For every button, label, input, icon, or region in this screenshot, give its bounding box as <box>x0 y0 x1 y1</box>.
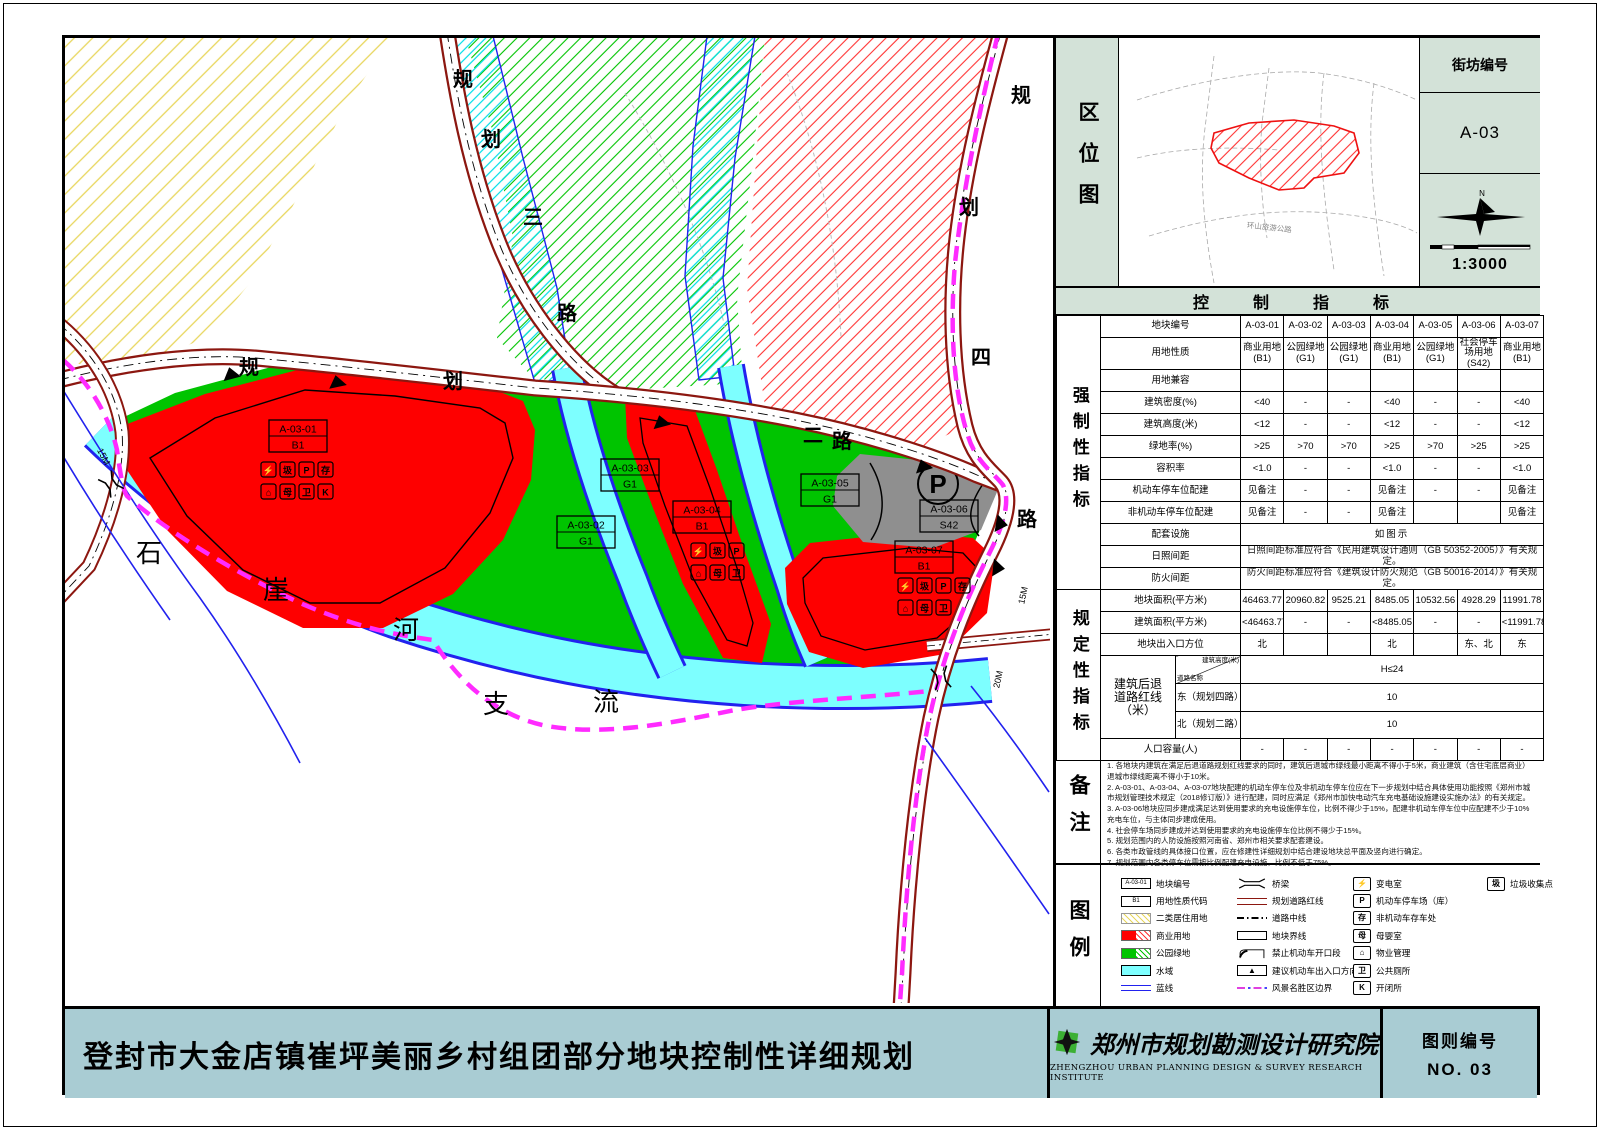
legend-item-label: 开闭所 <box>1376 982 1402 994</box>
legend-item-label: 建议机动车出入口方向 <box>1272 965 1358 977</box>
table-cell: 如图示 <box>1241 524 1544 546</box>
svg-text:B1: B1 <box>696 521 709 533</box>
table-cell: - <box>1284 502 1327 524</box>
table-cell: - <box>1457 612 1500 634</box>
legend-item-label: 桥梁 <box>1272 878 1289 890</box>
institute-name-en: ZHENGZHOU URBAN PLANNING DESIGN & SURVEY… <box>1050 1063 1380 1083</box>
svg-text:支: 支 <box>483 689 509 719</box>
legend-item: 禁止机动车开口段 <box>1237 945 1358 962</box>
svg-text:A-03-05: A-03-05 <box>811 478 849 490</box>
sheet-number-cell: 图则编号 NO. 03 <box>1383 1009 1537 1098</box>
scenic-boundary-swatch <box>1237 987 1267 990</box>
parking-symbol-letter: P <box>929 469 946 499</box>
svg-text:A-03-01: A-03-01 <box>279 424 317 436</box>
park-green-swatch <box>1121 948 1151 959</box>
table-cell: 北 <box>1370 634 1413 656</box>
table-cell: 商业用地 (B1) <box>1500 338 1543 370</box>
minimap-svg: 环山旅游公路 <box>1119 38 1419 285</box>
legend-item: ⌂物业管理 <box>1353 945 1453 962</box>
table-row: 用地兼容 <box>1057 370 1544 392</box>
svg-text:G1: G1 <box>623 479 637 491</box>
legend-item: K开闭所 <box>1353 979 1453 996</box>
legend-item-label: 用地性质代码 <box>1156 895 1208 907</box>
table-row: 规定性指标地块面积(平方米)46463.7720960.829525.21848… <box>1057 590 1544 612</box>
code-box-swatch: A-03-01 <box>1121 878 1151 889</box>
table-cell: 地块编号 <box>1101 316 1241 338</box>
plot-code-cell: A-03-01 <box>1241 316 1284 338</box>
table-cell <box>1414 634 1457 656</box>
svg-text:圾: 圾 <box>920 581 930 592</box>
table-cell: 8485.05 <box>1370 590 1413 612</box>
table-cell: >25 <box>1370 436 1413 458</box>
table-cell: 10 <box>1241 712 1544 739</box>
legend-item: P机动车停车场（库） <box>1353 892 1453 909</box>
svg-text:路: 路 <box>1017 507 1038 531</box>
svg-text:B1: B1 <box>918 561 931 573</box>
plan-sheet-page: P <box>0 0 1600 1130</box>
table-cell: - <box>1327 502 1370 524</box>
table-cell: 公园绿地 (G1) <box>1284 338 1327 370</box>
main-plan-map: P <box>65 38 1053 1006</box>
legend-item-label: 二类居住用地 <box>1156 912 1208 924</box>
scale-bar <box>1425 242 1535 252</box>
legend-item: 公园绿地 <box>1121 945 1208 962</box>
table-cell: 4928.29 <box>1457 590 1500 612</box>
svg-text:⌂: ⌂ <box>696 569 701 579</box>
svg-text:河: 河 <box>393 615 419 645</box>
table-cell <box>1457 502 1500 524</box>
table-cell: >25 <box>1500 436 1543 458</box>
facility-icon: ⚡ <box>1353 877 1371 891</box>
block-number-value: A-03 <box>1420 93 1540 174</box>
table-cell: 11991.78 <box>1500 590 1543 612</box>
table-cell <box>1370 370 1413 392</box>
table-cell: <46463.77 <box>1241 612 1284 634</box>
legend-item-label: 机动车停车场（库） <box>1376 895 1453 907</box>
facility-icon: ⌂ <box>1353 946 1371 960</box>
compass-rose-icon: N <box>1425 186 1535 238</box>
table-cell: 10532.56 <box>1414 590 1457 612</box>
note-line: 3. A-03-06地块应同步建成满足达到使用要求的充电设施停车位，比例不得少于… <box>1107 804 1534 826</box>
institute-logo-icon <box>1052 1027 1082 1057</box>
table-cell: - <box>1284 458 1327 480</box>
table-cell: <12 <box>1500 414 1543 436</box>
institute-cell: 郑州市规划勘测设计研究院 ZHENGZHOU URBAN PLANNING DE… <box>1050 1009 1383 1098</box>
table-cell <box>1241 370 1284 392</box>
table-cell: 建筑高度(米) <box>1101 414 1241 436</box>
table-cell: - <box>1327 612 1370 634</box>
scale-text: 1:3000 <box>1452 256 1508 274</box>
mandatory-section-label: 强制性指标 <box>1057 316 1101 590</box>
legend-item: 水域 <box>1121 962 1208 979</box>
table-cell: >70 <box>1327 436 1370 458</box>
svg-text:A-03-07: A-03-07 <box>905 545 943 557</box>
table-cell: - <box>1414 414 1457 436</box>
svg-text:B1: B1 <box>292 440 305 452</box>
table-cell: 见备注 <box>1370 502 1413 524</box>
control-table: 强制性指标地块编号A-03-01A-03-02A-03-03A-03-04A-0… <box>1056 315 1544 761</box>
table-cell: <40 <box>1241 392 1284 414</box>
residential-class2-zone <box>65 38 395 368</box>
legend-item: 蓝线 <box>1121 979 1208 996</box>
location-minimap: 环山旅游公路 <box>1119 38 1420 286</box>
institute-name: 郑州市规划勘测设计研究院 <box>1090 1025 1378 1060</box>
legend-item: 桥梁 <box>1237 875 1358 892</box>
table-row: 建筑后退 道路红线 （米）建筑高度(米)道路名称H≤24 <box>1057 656 1544 684</box>
title-bar: 登封市大金店镇崔坪美丽乡村组团部分地块控制性详细规划 郑州市规划勘测设计研究院 … <box>65 1006 1537 1098</box>
legend-item-label: 公园绿地 <box>1156 947 1190 959</box>
table-cell: 见备注 <box>1241 502 1284 524</box>
block-number-label: 街坊编号 <box>1420 38 1540 93</box>
svg-text:A-03-04: A-03-04 <box>683 505 721 517</box>
svg-text:15M: 15M <box>1016 586 1029 605</box>
svg-text:母: 母 <box>283 488 292 498</box>
svg-text:P: P <box>733 547 739 557</box>
svg-text:母: 母 <box>713 569 722 579</box>
table-row: 容积率<1.0--<1.0--<1.0 <box>1057 458 1544 480</box>
location-map-title: 区位图 <box>1056 38 1119 286</box>
legend-item-label: 母婴室 <box>1376 930 1402 942</box>
note-line: 1. 各地块内建筑在满足后退道路规划红线要求的同时，建筑后退城市绿线最小距离不得… <box>1107 761 1534 783</box>
svg-text:圾: 圾 <box>713 546 723 557</box>
legend-item-label: 商业用地 <box>1156 930 1190 942</box>
table-cell: <1.0 <box>1500 458 1543 480</box>
table-cell <box>1414 370 1457 392</box>
plot-code-cell: A-03-04 <box>1370 316 1413 338</box>
table-row: 地块出入口方位北北东、北东 <box>1057 634 1544 656</box>
legend-item-label: 禁止机动车开口段 <box>1272 947 1341 959</box>
legend-item: A-03-01地块编号 <box>1121 875 1208 892</box>
table-cell: 见备注 <box>1500 502 1543 524</box>
location-block-info: 街坊编号 A-03 N <box>1420 38 1540 286</box>
table-cell: - <box>1284 414 1327 436</box>
svg-text:S42: S42 <box>940 520 959 532</box>
table-cell: - <box>1457 414 1500 436</box>
table-cell: - <box>1284 480 1327 502</box>
table-cell: - <box>1414 458 1457 480</box>
table-cell: - <box>1327 458 1370 480</box>
legend-item: 商业用地 <box>1121 927 1208 944</box>
note-line: 5. 规划范围内的人防设施按照河南省、郑州市相关要求配套建设。 <box>1107 836 1534 847</box>
svg-text:母: 母 <box>920 604 929 614</box>
table-cell: 北（规划二路） <box>1176 712 1241 739</box>
table-cell: - <box>1414 480 1457 502</box>
table-cell: 见备注 <box>1500 480 1543 502</box>
table-row: 非机动车停车位配建见备注--见备注见备注 <box>1057 502 1544 524</box>
svg-text:规: 规 <box>239 356 259 379</box>
table-row: 绿地率(%)>25>70>70>25>70>25>25 <box>1057 436 1544 458</box>
svg-text:规: 规 <box>453 68 473 91</box>
svg-text:G1: G1 <box>823 494 837 506</box>
notes-block: 备注 1. 各地块内建筑在满足后退道路规划红线要求的同时，建筑后退城市绿线最小距… <box>1056 758 1540 865</box>
facility-icon: 母 <box>1353 929 1371 943</box>
water-swatch <box>1121 965 1151 976</box>
table-cell: 机动车停车位配建 <box>1101 480 1241 502</box>
sheet-number-label: 图则编号 <box>1422 1027 1498 1052</box>
svg-text:四: 四 <box>971 347 991 369</box>
legend-item-label: 变电室 <box>1376 878 1402 890</box>
legend-item-label: 非机动车存车处 <box>1376 912 1436 924</box>
table-row: 日照间距日照间距标准应符合《民用建筑设计通则（GB 50352-2005）》有关… <box>1057 546 1544 568</box>
svg-text:⚡: ⚡ <box>263 465 274 477</box>
svg-text:三: 三 <box>523 207 543 229</box>
table-cell: 地块出入口方位 <box>1101 634 1241 656</box>
plot-code-cell: A-03-05 <box>1414 316 1457 338</box>
table-cell: 10 <box>1241 684 1544 712</box>
table-cell: - <box>1284 392 1327 414</box>
entrance-direction-icon: ▲ <box>1237 965 1267 976</box>
table-cell: - <box>1414 612 1457 634</box>
legend-block: 图例 A-03-01地块编号B1用地性质代码二类居住用地商业用地公园绿地水域蓝线… <box>1056 865 1540 1006</box>
legend-item: ⚡变电室 <box>1353 875 1453 892</box>
svg-text:⌂: ⌂ <box>266 488 271 498</box>
table-cell: 建筑面积(平方米) <box>1101 612 1241 634</box>
table-cell: - <box>1327 414 1370 436</box>
note-line: 6. 各类市政管线的具体接口位置，应在修建性详细规划中结合建设地块总平面及竖向进… <box>1107 847 1534 858</box>
table-cell: <8485.05 <box>1370 612 1413 634</box>
svg-text:N: N <box>1479 189 1485 198</box>
table-cell: 社会停车 场用地(S42) <box>1457 338 1500 370</box>
table-cell: 见备注 <box>1241 480 1284 502</box>
legend-item: 地块界线 <box>1237 927 1358 944</box>
legend-item-label: 垃圾收集点 <box>1510 878 1553 890</box>
table-cell: 北 <box>1241 634 1284 656</box>
table-cell: 建筑密度(%) <box>1101 392 1241 414</box>
legend-item: ▲建议机动车出入口方向 <box>1237 962 1358 979</box>
table-cell: >25 <box>1457 436 1500 458</box>
table-cell <box>1327 634 1370 656</box>
plot-code-cell: A-03-03 <box>1327 316 1370 338</box>
table-cell: 防火间距 <box>1101 568 1241 590</box>
table-cell: >70 <box>1284 436 1327 458</box>
table-cell: 日照间距标准应符合《民用建筑设计通则（GB 50352-2005）》有关规定。 <box>1241 546 1544 568</box>
drawing-sheet: P <box>62 35 1540 1095</box>
table-cell: 东、北 <box>1457 634 1500 656</box>
facility-icon: P <box>1353 894 1371 908</box>
table-cell: 46463.77 <box>1241 590 1284 612</box>
table-cell: >25 <box>1241 436 1284 458</box>
residential-hatch-swatch <box>1121 913 1151 924</box>
table-row: 建筑密度(%)<40--<40--<40 <box>1057 392 1544 414</box>
table-cell: - <box>1457 458 1500 480</box>
table-cell: 9525.21 <box>1327 590 1370 612</box>
table-cell: >70 <box>1414 436 1457 458</box>
setback-label-cell: 建筑后退 道路红线 （米） <box>1101 656 1176 739</box>
legend-item-label: 蓝线 <box>1156 982 1173 994</box>
plot-code-cell: A-03-07 <box>1500 316 1543 338</box>
table-cell: 公园绿地 (G1) <box>1327 338 1370 370</box>
svg-text:圾: 圾 <box>283 465 293 476</box>
legend-body: A-03-01地块编号B1用地性质代码二类居住用地商业用地公园绿地水域蓝线 桥梁… <box>1101 865 1540 1006</box>
blue-line-swatch <box>1121 985 1151 991</box>
svg-text:石: 石 <box>136 538 162 568</box>
location-map-block: 区位图 环山旅游公路 <box>1056 38 1540 288</box>
table-cell: 商业用地 (B1) <box>1370 338 1413 370</box>
commercial-swatch <box>1121 930 1151 941</box>
svg-text:存: 存 <box>321 465 330 476</box>
legend-item: 二类居住用地 <box>1121 910 1208 927</box>
road-centerline-swatch <box>1237 917 1267 919</box>
no-vehicle-opening-icon <box>1237 948 1267 959</box>
svg-text:A-03-06: A-03-06 <box>930 504 968 516</box>
table-cell: - <box>1457 480 1500 502</box>
svg-text:卫: 卫 <box>939 604 948 614</box>
note-line: 4. 社会停车场同步建成并达到使用要求的充电设施停车位比例不得少于15%。 <box>1107 826 1534 837</box>
minimap-block-a03 <box>1211 120 1359 190</box>
table-cell: <1.0 <box>1370 458 1413 480</box>
svg-text:卫: 卫 <box>732 569 741 579</box>
table-cell: 绿地率(%) <box>1101 436 1241 458</box>
road-redline-swatch <box>1237 898 1267 905</box>
table-cell: 容积率 <box>1101 458 1241 480</box>
table-cell: <12 <box>1241 414 1284 436</box>
svg-text:崖: 崖 <box>263 575 289 605</box>
table-cell <box>1414 502 1457 524</box>
legend-item: 规划道路红线 <box>1237 892 1358 909</box>
table-row: 配套设施如图示 <box>1057 524 1544 546</box>
svg-text:划: 划 <box>481 128 501 151</box>
sheet-title: 登封市大金店镇崔坪美丽乡村组团部分地块控制性详细规划 <box>65 1009 1050 1098</box>
table-cell <box>1284 634 1327 656</box>
table-row: 防火间距防火间距标准应符合《建筑设计防火规范（GB 50016-2014）》有关… <box>1057 568 1544 590</box>
table-cell <box>1284 370 1327 392</box>
svg-text:卫: 卫 <box>302 488 311 498</box>
setback-diagonal-header: 建筑高度(米)道路名称 <box>1176 656 1241 684</box>
svg-text:A-03-02: A-03-02 <box>567 520 605 532</box>
table-cell: 东 <box>1500 634 1543 656</box>
facility-icon: 存 <box>1353 911 1371 925</box>
notes-text: 1. 各地块内建筑在满足后退道路规划红线要求的同时，建筑后退城市绿线最小距离不得… <box>1101 758 1540 863</box>
legend-item-label: 规划道路红线 <box>1272 895 1324 907</box>
legend-item: 母母婴室 <box>1353 927 1453 944</box>
svg-text:二: 二 <box>803 425 823 447</box>
svg-text:流: 流 <box>593 687 619 717</box>
table-cell: 用地兼容 <box>1101 370 1241 392</box>
svg-text:划: 划 <box>443 370 463 393</box>
svg-text:⚡: ⚡ <box>900 581 911 593</box>
map-svg: P <box>65 38 1050 1003</box>
bridge-icon <box>1237 878 1267 889</box>
svg-text:A-03-03: A-03-03 <box>611 463 649 475</box>
table-cell: <1.0 <box>1241 458 1284 480</box>
table-cell: - <box>1284 612 1327 634</box>
svg-text:P: P <box>940 582 946 592</box>
table-cell: 20960.82 <box>1284 590 1327 612</box>
table-cell: H≤24 <box>1241 656 1544 684</box>
table-row: 强制性指标地块编号A-03-01A-03-02A-03-03A-03-04A-0… <box>1057 316 1544 338</box>
table-cell: <40 <box>1500 392 1543 414</box>
table-cell <box>1457 370 1500 392</box>
legend-item-label: 物业管理 <box>1376 947 1410 959</box>
info-panel: 区位图 环山旅游公路 <box>1053 38 1540 1006</box>
legend-title: 图例 <box>1056 865 1101 1006</box>
legend-item-label: 地块编号 <box>1156 878 1190 890</box>
table-cell: 防火间距标准应符合《建筑设计防火规范（GB 50016-2014）》有关规定。 <box>1241 568 1544 590</box>
facility-icon: 圾 <box>1487 877 1505 891</box>
table-cell: 公园绿地 (G1) <box>1414 338 1457 370</box>
plot-code-cell: A-03-02 <box>1284 316 1327 338</box>
legend-item: B1用地性质代码 <box>1121 892 1208 909</box>
control-table-title: 控 制 指 标 <box>1056 288 1540 315</box>
svg-text:存: 存 <box>958 581 967 592</box>
svg-text:路: 路 <box>832 429 853 453</box>
minimap-road-label: 环山旅游公路 <box>1246 220 1292 235</box>
table-row: 机动车停车位配建见备注--见备注--见备注 <box>1057 480 1544 502</box>
svg-text:规: 规 <box>1011 84 1031 107</box>
table-cell <box>1327 370 1370 392</box>
svg-text:K: K <box>322 488 329 498</box>
note-line: 2. A-03-01、A-03-04、A-03-07地块配建的机动车停车位及非机… <box>1107 783 1534 805</box>
table-cell: - <box>1327 480 1370 502</box>
table-cell: - <box>1414 392 1457 414</box>
legend-item-label: 道路中线 <box>1272 912 1306 924</box>
plot-code-cell: A-03-06 <box>1457 316 1500 338</box>
table-cell: <11991.78 <box>1500 612 1543 634</box>
table-cell: - <box>1327 392 1370 414</box>
prescriptive-section-label: 规定性指标 <box>1057 590 1101 761</box>
table-cell: 配套设施 <box>1101 524 1241 546</box>
legend-item: 存非机动车存车处 <box>1353 910 1453 927</box>
table-cell: 商业用地 (B1) <box>1241 338 1284 370</box>
legend-item-label: 风景名胜区边界 <box>1272 982 1332 994</box>
legend-item-label: 水域 <box>1156 965 1173 977</box>
table-cell: 地块面积(平方米) <box>1101 590 1241 612</box>
table-cell: - <box>1457 392 1500 414</box>
plot-boundary-swatch <box>1237 931 1267 940</box>
code-box-swatch: B1 <box>1121 896 1151 907</box>
table-cell: 非机动车停车位配建 <box>1101 502 1241 524</box>
svg-text:G1: G1 <box>579 536 593 548</box>
table-row: 建筑高度(米)<12--<12--<12 <box>1057 414 1544 436</box>
table-cell: <12 <box>1370 414 1413 436</box>
compass-and-scale: N 1:3000 <box>1420 174 1540 286</box>
legend-item-label: 公共厕所 <box>1376 965 1410 977</box>
table-row: 建筑面积(平方米)<46463.77--<8485.05--<11991.78 <box>1057 612 1544 634</box>
table-cell <box>1500 370 1543 392</box>
legend-item: 风景名胜区边界 <box>1237 979 1358 996</box>
legend-item: 圾垃圾收集点 <box>1487 875 1553 892</box>
table-cell: <40 <box>1370 392 1413 414</box>
svg-text:20M: 20M <box>991 670 1004 689</box>
svg-text:划: 划 <box>959 196 979 219</box>
svg-text:P: P <box>303 466 309 476</box>
svg-text:⌂: ⌂ <box>903 604 908 614</box>
legend-item: 道路中线 <box>1237 910 1358 927</box>
svg-text:路: 路 <box>557 301 578 325</box>
svg-text:⚡: ⚡ <box>693 546 704 558</box>
facility-icon: K <box>1353 981 1371 995</box>
table-cell: 见备注 <box>1370 480 1413 502</box>
table-row: 用地性质商业用地 (B1)公园绿地 (G1)公园绿地 (G1)商业用地 (B1)… <box>1057 338 1544 370</box>
table-cell: 东（规划四路） <box>1176 684 1241 712</box>
facility-icon: 卫 <box>1353 964 1371 978</box>
legend-item-label: 地块界线 <box>1272 930 1306 942</box>
table-cell: 日照间距 <box>1101 546 1241 568</box>
notes-title: 备注 <box>1056 758 1101 863</box>
table-cell: 用地性质 <box>1101 338 1241 370</box>
sheet-number-value: NO. 03 <box>1427 1060 1493 1080</box>
legend-item: 卫公共厕所 <box>1353 962 1453 979</box>
